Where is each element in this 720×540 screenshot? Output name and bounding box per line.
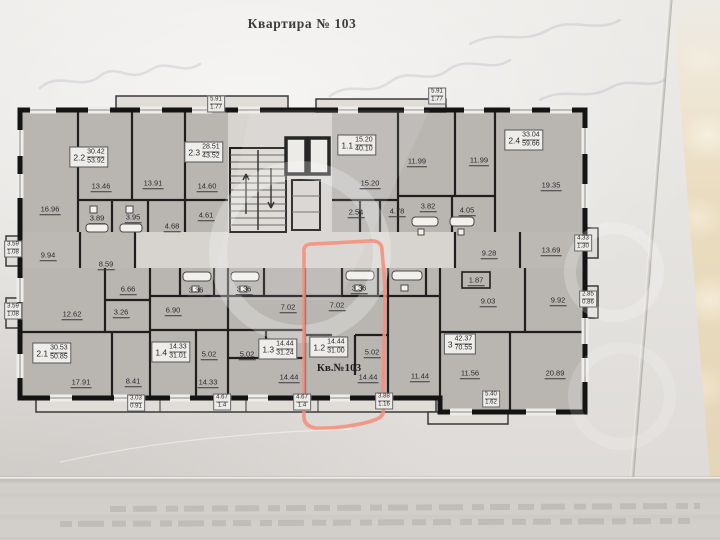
room-area: 9.92 [550,296,567,306]
floorplan-photo: Квартира № 103 2.2 30.4253.92 2.3 28.514… [0,0,720,540]
room-area: 13.69 [541,246,562,256]
room-area: 9.03 [480,297,497,307]
balcony-label: 4.331.30 [574,235,592,252]
balcony-label: 5.911.77 [207,96,225,113]
plan-labels: 2.2 30.4253.92 2.3 28.5143.52 1.1 15.204… [0,0,720,540]
room-area: 4.78 [389,207,406,217]
room-area: 7.02 [280,303,297,313]
room-area: 2.54 [348,208,365,218]
room-area: 14.44 [358,373,379,383]
room-area: 19.35 [541,181,562,191]
room-area: 3.89 [89,214,106,224]
balcony-label: 4.671.4 [213,394,231,411]
room-area: 3.36 [188,286,205,296]
room-area: 7.02 [329,301,346,311]
apartment-box-2-3: 2.3 28.5143.52 [184,142,223,163]
room-area: 6.90 [165,306,182,316]
balcony-label: 5.911.77 [428,88,446,105]
room-area: 3.26 [113,308,130,318]
balcony-label: 3.591.08 [4,303,22,320]
room-area: 4.05 [459,206,476,216]
room-area: 20.89 [545,369,566,379]
apartment-box-1-3: 1.3 14.4431.24 [258,339,297,360]
room-area: 12.62 [62,310,83,320]
room-area: 14.33 [198,378,219,388]
room-area: 6.66 [120,285,137,295]
room-area: 8.59 [98,260,115,270]
room-area: 11.99 [407,157,427,167]
room-area: 5.02 [364,348,381,358]
apartment-box-3: 3 42.3770.55 [444,334,476,355]
apartment-box-1-2: 1.2 14.4431.00 [309,337,348,358]
room-area: 11.99 [469,156,489,166]
room-area: 3.95 [125,213,142,223]
apartment-box-1-1: 1.1 15.2040.10 [337,135,376,156]
balcony-label: 4.671.4 [293,394,311,411]
apartment-box-1-4: 1.4 14.3331.01 [151,342,190,363]
apartment-box-2-2: 2.2 30.4253.92 [69,147,108,168]
room-area: 9.28 [481,249,498,259]
room-area: 4.68 [164,222,181,232]
room-area: 3.36 [236,285,253,295]
apartment-box-2-1: 2.1 30.5350.85 [32,343,71,364]
room-area: 14.44 [279,373,300,383]
room-area: 16.96 [40,205,61,215]
room-area: 1.87 [468,276,485,286]
balcony-label: 3.591.08 [4,241,22,258]
balcony-label: 3.030.91 [127,395,145,412]
balcony-label: 5.401.62 [482,391,500,408]
balcony-label: 2.850.86 [579,291,597,308]
apartment-box-2-4: 2.4 33.0459.66 [504,130,543,151]
room-area: 4.61 [198,211,215,221]
room-area: 17.91 [71,378,92,388]
flat-103-label: Кв.№103 [317,362,361,374]
room-area: 3.82 [420,202,437,212]
room-area: 14.60 [197,182,218,192]
room-area: 11.44 [410,372,430,382]
room-area: 13.46 [91,182,112,192]
room-area: 11.56 [460,369,480,379]
room-area: 15.20 [360,179,381,189]
room-area: 5.02 [201,350,218,360]
room-area: 3.36 [351,284,368,294]
room-area: 13.91 [143,179,164,189]
room-area: 8.41 [125,377,142,387]
room-area: 5.02 [239,350,256,360]
room-area: 9.94 [40,251,57,261]
balcony-label: 3.881.16 [375,393,393,410]
